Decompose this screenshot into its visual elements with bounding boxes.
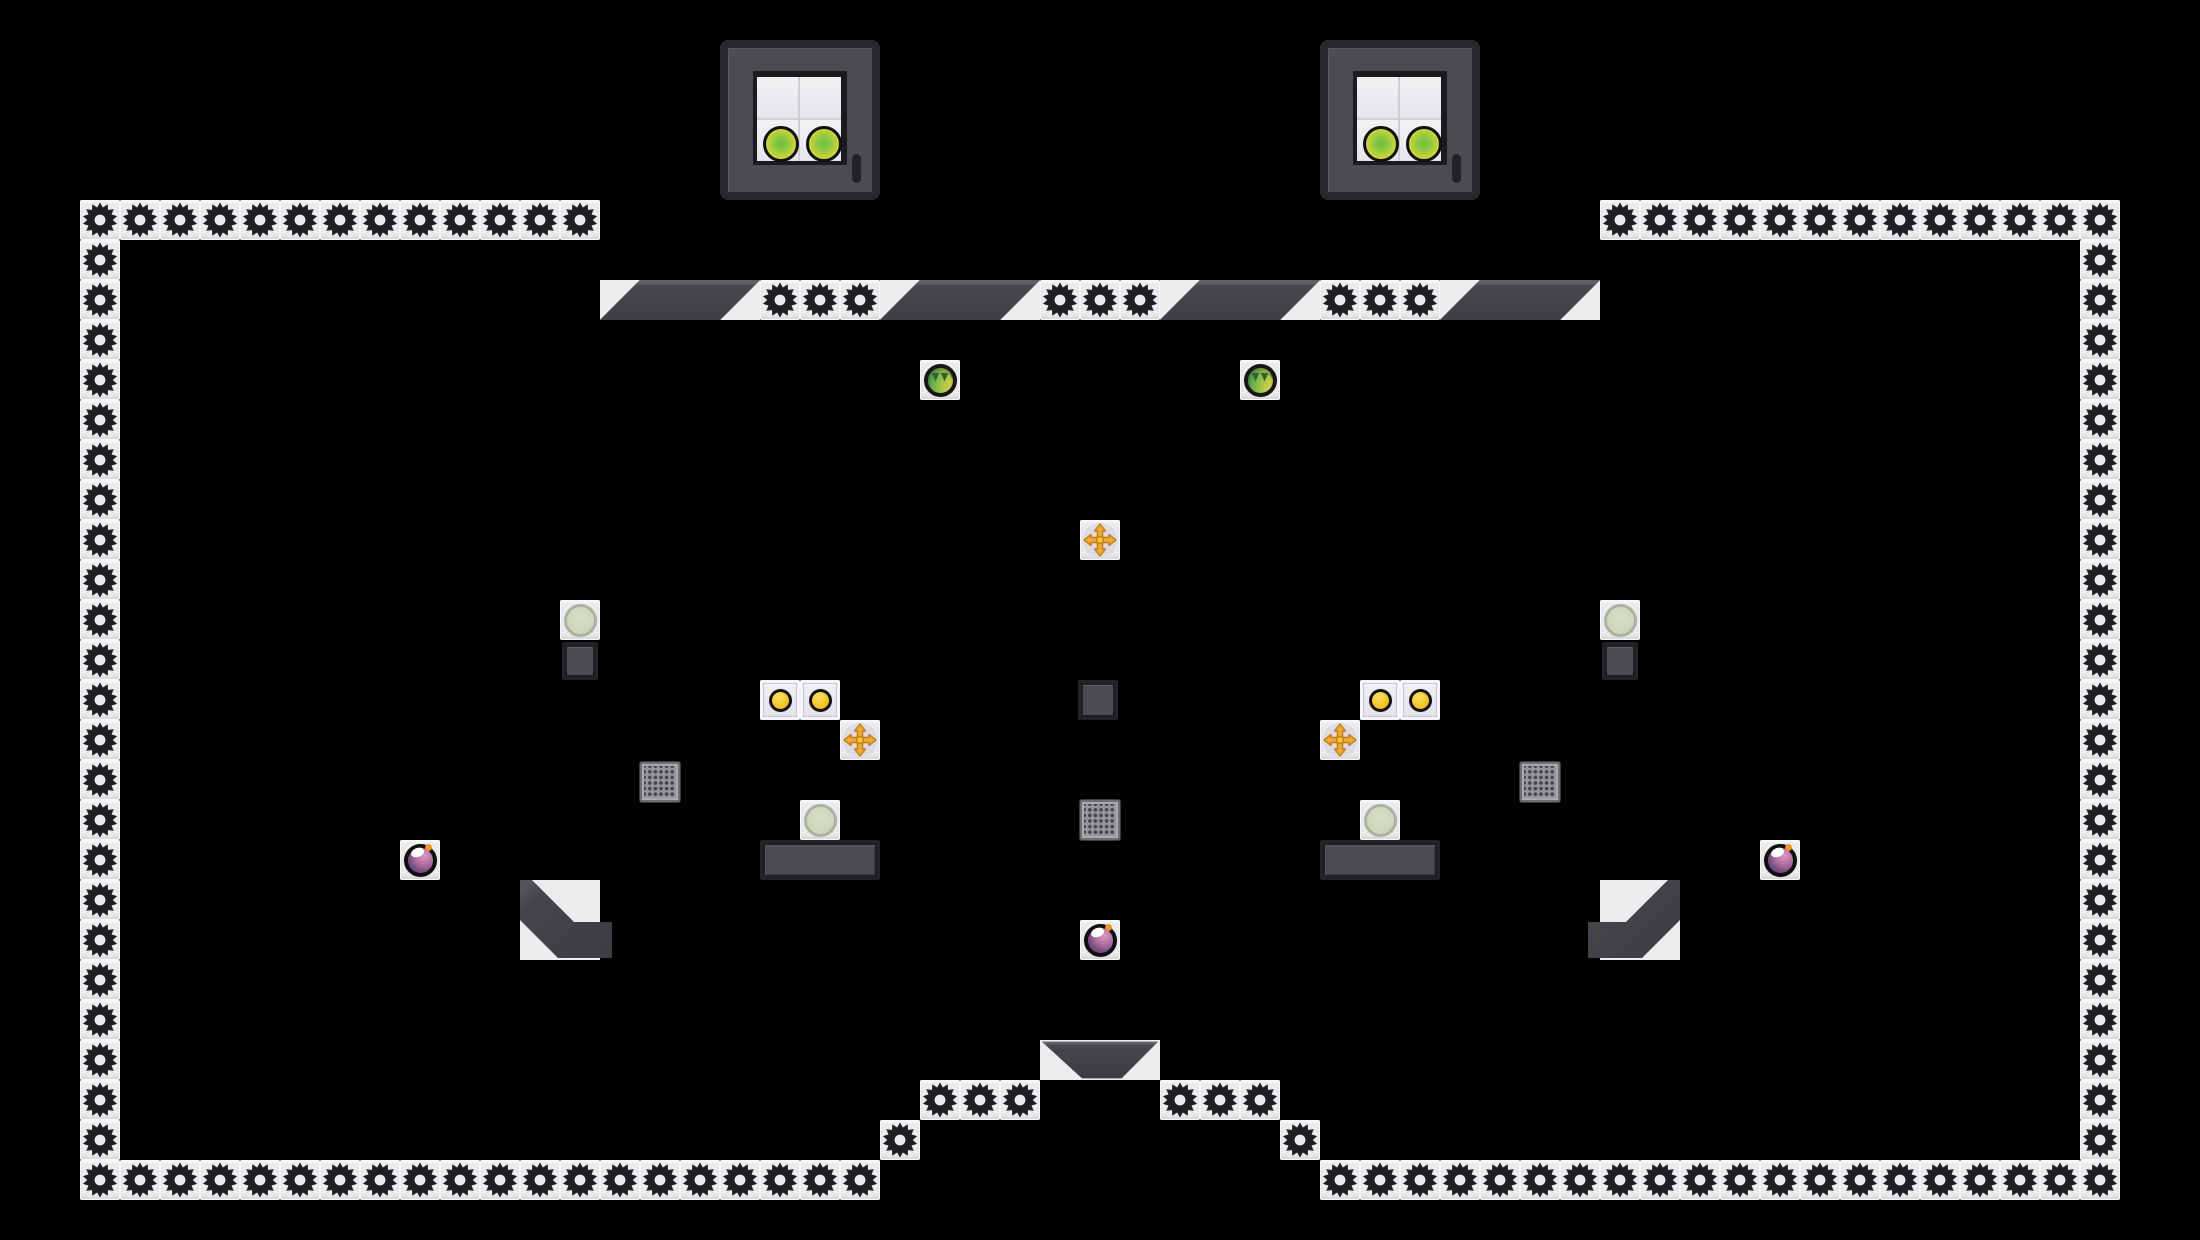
spawner-orb-light — [1363, 126, 1399, 162]
gear-block-tile — [2080, 320, 2120, 360]
gear-icon — [520, 1160, 560, 1200]
gear-icon — [400, 200, 440, 240]
gear-icon — [960, 1080, 1000, 1120]
gear-block-tile — [600, 1160, 640, 1200]
gear-icon — [80, 240, 120, 280]
metal-crate[interactable] — [1078, 680, 1118, 720]
gear-block-tile — [2080, 600, 2120, 640]
gear-block-tile — [1680, 200, 1720, 240]
gear-block-tile — [1640, 200, 1680, 240]
bomb-spark-icon — [1105, 924, 1112, 931]
pale-bubble-tile — [1600, 600, 1640, 640]
gear-block-tile — [1800, 200, 1840, 240]
gear-block-tile — [80, 560, 120, 600]
gear-block-tile — [80, 320, 120, 360]
gear-block-tile — [2000, 1160, 2040, 1200]
gear-block-tile — [2080, 1040, 2120, 1080]
gear-icon — [120, 1160, 160, 1200]
gear-icon — [80, 1080, 120, 1120]
gear-block-tile — [1480, 1160, 1520, 1200]
gear-block-tile — [1840, 1160, 1880, 1200]
pale-bubble-tile — [800, 800, 840, 840]
yellow-dot-button[interactable] — [800, 680, 840, 720]
gear-block-tile — [2080, 880, 2120, 920]
gear-block-tile — [1800, 1160, 1840, 1200]
gear-block-tile — [960, 1080, 1000, 1120]
bomb-shine-icon — [1090, 926, 1105, 938]
gear-icon — [200, 200, 240, 240]
slanted-platform — [1160, 280, 1320, 320]
spawner-orb-light — [806, 126, 842, 162]
bomb-spark-icon — [425, 844, 432, 851]
purple-bomb-tile — [400, 840, 440, 880]
gear-icon — [1080, 280, 1120, 320]
gear-block-tile — [2080, 1000, 2120, 1040]
gear-icon — [600, 1160, 640, 1200]
gear-icon — [2080, 560, 2120, 600]
gear-block-tile — [2080, 800, 2120, 840]
gear-block-tile — [1080, 280, 1120, 320]
gear-icon — [1880, 1160, 1920, 1200]
pale-bubble[interactable] — [1364, 804, 1397, 837]
gear-icon — [120, 200, 160, 240]
gear-icon — [1880, 200, 1920, 240]
gear-icon — [1760, 1160, 1800, 1200]
gear-icon — [560, 1160, 600, 1200]
purple-bomb[interactable] — [404, 844, 437, 877]
gear-block-tile — [1360, 280, 1400, 320]
gear-icon — [80, 680, 120, 720]
pale-bubble[interactable] — [804, 804, 837, 837]
gear-icon — [1680, 1160, 1720, 1200]
gear-icon — [2080, 760, 2120, 800]
yellow-dot-button[interactable] — [760, 680, 800, 720]
green-chomper-orb[interactable] — [924, 364, 957, 397]
gear-block-tile — [760, 1160, 800, 1200]
gear-block-tile — [400, 200, 440, 240]
move-arrows-pickup[interactable] — [1320, 720, 1360, 760]
gear-icon — [1480, 1160, 1520, 1200]
spawner-orb-light — [1406, 126, 1442, 162]
gear-block-tile — [2080, 840, 2120, 880]
gear-icon — [2000, 200, 2040, 240]
gear-block-tile — [1920, 1160, 1960, 1200]
gear-icon — [80, 360, 120, 400]
gear-icon — [80, 400, 120, 440]
gear-block-tile — [1320, 1160, 1360, 1200]
pale-bubble-tile — [1360, 800, 1400, 840]
gear-icon — [80, 1040, 120, 1080]
gear-icon — [1720, 1160, 1760, 1200]
gear-icon — [2080, 880, 2120, 920]
yellow-dot-icon — [809, 689, 832, 712]
gear-icon — [2080, 320, 2120, 360]
gear-icon — [2080, 1040, 2120, 1080]
gear-icon — [720, 1160, 760, 1200]
gear-block-tile — [2080, 280, 2120, 320]
gear-icon — [320, 200, 360, 240]
gear-icon — [1920, 1160, 1960, 1200]
chomper-tooth-icon — [1270, 373, 1277, 382]
gear-icon — [240, 1160, 280, 1200]
gear-icon — [1680, 200, 1720, 240]
gear-block-tile — [240, 1160, 280, 1200]
gear-icon — [480, 1160, 520, 1200]
gear-block-tile — [2080, 520, 2120, 560]
gear-block-tile — [80, 360, 120, 400]
yellow-dot-icon — [1369, 689, 1392, 712]
gear-block-tile — [80, 600, 120, 640]
gear-icon — [80, 1000, 120, 1040]
gear-icon — [1720, 200, 1760, 240]
gear-block-tile — [1400, 1160, 1440, 1200]
gear-block-tile — [2080, 400, 2120, 440]
gear-icon — [440, 1160, 480, 1200]
move-arrows-icon — [1320, 720, 1360, 760]
gear-icon — [640, 1160, 680, 1200]
spawner-box[interactable] — [1320, 40, 1480, 200]
gear-icon — [1960, 200, 2000, 240]
gear-block-tile — [720, 1160, 760, 1200]
gear-block-tile — [2000, 200, 2040, 240]
gear-block-tile — [80, 1160, 120, 1200]
gear-icon — [80, 720, 120, 760]
gear-icon — [80, 600, 120, 640]
gear-block-tile — [2080, 200, 2120, 240]
spawner-window-cell — [800, 77, 841, 118]
gear-block-tile — [520, 1160, 560, 1200]
gear-icon — [2080, 640, 2120, 680]
gear-icon — [80, 560, 120, 600]
gear-icon — [80, 1120, 120, 1160]
chomper-tooth-icon — [1252, 373, 1260, 382]
gear-icon — [360, 1160, 400, 1200]
gear-icon — [80, 920, 120, 960]
gear-block-tile — [1120, 280, 1160, 320]
gear-block-tile — [840, 1160, 880, 1200]
gear-block-tile — [2080, 720, 2120, 760]
gear-icon — [1640, 200, 1680, 240]
gear-icon — [1360, 1160, 1400, 1200]
gear-icon — [1600, 200, 1640, 240]
gear-block-tile — [2080, 360, 2120, 400]
gear-icon — [1160, 1080, 1200, 1120]
gear-icon — [1120, 280, 1160, 320]
gear-icon — [80, 520, 120, 560]
gear-icon — [2080, 400, 2120, 440]
gear-block-tile — [1760, 200, 1800, 240]
gear-icon — [1360, 280, 1400, 320]
platform-block — [760, 840, 880, 880]
gear-icon — [2080, 360, 2120, 400]
gear-block-tile — [80, 880, 120, 920]
pale-bubble[interactable] — [1604, 604, 1637, 637]
gear-icon — [1800, 200, 1840, 240]
move-arrows-icon — [1080, 520, 1120, 560]
green-chomper-orb[interactable] — [1244, 364, 1277, 397]
gear-block-tile — [80, 680, 120, 720]
gear-icon — [400, 1160, 440, 1200]
corner-chute — [1588, 880, 1680, 960]
gear-icon — [2080, 840, 2120, 880]
gear-block-tile — [680, 1160, 720, 1200]
gear-icon — [2080, 520, 2120, 560]
vent-grate-tile — [1520, 762, 1560, 802]
gear-block-tile — [1960, 200, 2000, 240]
gear-icon — [80, 840, 120, 880]
bomb-shine-icon — [1770, 846, 1785, 858]
gear-icon — [80, 280, 120, 320]
purple-bomb[interactable] — [1764, 844, 1797, 877]
gear-block-tile — [1200, 1080, 1240, 1120]
gear-block-tile — [440, 1160, 480, 1200]
gear-icon — [1200, 1080, 1240, 1120]
gear-icon — [2080, 440, 2120, 480]
gear-block-tile — [1920, 200, 1960, 240]
gear-icon — [2080, 800, 2120, 840]
gear-icon — [1280, 1120, 1320, 1160]
gear-icon — [280, 1160, 320, 1200]
gear-block-tile — [1960, 1160, 2000, 1200]
gear-block-tile — [80, 400, 120, 440]
gear-block-tile — [560, 1160, 600, 1200]
gear-icon — [1440, 1160, 1480, 1200]
gear-icon — [1560, 1160, 1600, 1200]
gear-block-tile — [840, 280, 880, 320]
gear-icon — [1000, 1080, 1040, 1120]
gear-block-tile — [800, 1160, 840, 1200]
yellow-dot-icon — [1409, 689, 1432, 712]
chomper-tooth-icon — [932, 373, 940, 382]
gear-icon — [80, 200, 120, 240]
gear-block-tile — [1280, 1120, 1320, 1160]
gear-icon — [80, 960, 120, 1000]
spawner-box[interactable] — [720, 40, 880, 200]
gear-block-tile — [360, 200, 400, 240]
spawner-window-cell — [757, 77, 798, 118]
gear-block-tile — [320, 200, 360, 240]
gear-block-tile — [1600, 1160, 1640, 1200]
spawner-window-cell — [1357, 77, 1398, 118]
gear-block-tile — [1360, 1160, 1400, 1200]
gear-block-tile — [1720, 1160, 1760, 1200]
gear-block-tile — [80, 240, 120, 280]
gear-block-tile — [2080, 440, 2120, 480]
gear-block-tile — [2080, 920, 2120, 960]
gear-icon — [1800, 1160, 1840, 1200]
gear-block-tile — [800, 280, 840, 320]
gear-block-tile — [520, 200, 560, 240]
gear-block-tile — [2080, 1080, 2120, 1120]
funnel-block — [1040, 1040, 1160, 1080]
vent-grate-tile — [1080, 800, 1120, 840]
gear-icon — [80, 640, 120, 680]
move-arrows-pickup[interactable] — [840, 720, 880, 760]
slanted-platform — [1440, 280, 1600, 320]
gear-block-tile — [80, 1120, 120, 1160]
gear-icon — [440, 200, 480, 240]
pale-bubble-tile — [560, 600, 600, 640]
gear-icon — [80, 320, 120, 360]
yellow-dot-icon — [769, 689, 792, 712]
vent-grate-tile — [640, 762, 680, 802]
gear-block-tile — [2080, 480, 2120, 520]
gear-block-tile — [160, 200, 200, 240]
gear-block-tile — [1880, 200, 1920, 240]
gear-icon — [360, 200, 400, 240]
gear-block-tile — [80, 800, 120, 840]
gear-block-tile — [1560, 1160, 1600, 1200]
gear-block-tile — [80, 960, 120, 1000]
spawner-orb-light — [763, 126, 799, 162]
metal-crate[interactable] — [562, 642, 598, 680]
gear-block-tile — [80, 840, 120, 880]
gear-block-tile — [80, 1000, 120, 1040]
gear-block-tile — [1400, 280, 1440, 320]
gear-icon — [2080, 920, 2120, 960]
gear-icon — [240, 200, 280, 240]
gear-block-tile — [240, 200, 280, 240]
bomb-shine-icon — [410, 846, 425, 858]
gear-block-tile — [880, 1120, 920, 1160]
gear-block-tile — [80, 640, 120, 680]
gear-icon — [560, 200, 600, 240]
bomb-spark-icon — [1785, 844, 1792, 851]
gear-block-tile — [2040, 1160, 2080, 1200]
gear-icon — [2080, 680, 2120, 720]
chomper-tooth-icon — [1261, 373, 1269, 382]
gear-icon — [2080, 480, 2120, 520]
gear-block-tile — [200, 1160, 240, 1200]
gear-block-tile — [2080, 760, 2120, 800]
spawner-latch — [852, 154, 861, 183]
gear-block-tile — [160, 1160, 200, 1200]
gear-block-tile — [120, 200, 160, 240]
chomper-tooth-icon — [941, 373, 949, 382]
metal-crate[interactable] — [1602, 642, 1638, 680]
gear-icon — [1400, 280, 1440, 320]
gear-icon — [2080, 600, 2120, 640]
pale-bubble[interactable] — [564, 604, 597, 637]
gear-block-tile — [80, 280, 120, 320]
gear-block-tile — [1720, 200, 1760, 240]
gear-icon — [760, 1160, 800, 1200]
gear-block-tile — [200, 200, 240, 240]
gear-icon — [1400, 1160, 1440, 1200]
gear-block-tile — [80, 720, 120, 760]
gear-block-tile — [320, 1160, 360, 1200]
gear-icon — [1320, 1160, 1360, 1200]
gear-block-tile — [1320, 280, 1360, 320]
gear-icon — [760, 280, 800, 320]
gear-icon — [1520, 1160, 1560, 1200]
gear-block-tile — [80, 200, 120, 240]
gear-icon — [2080, 200, 2120, 240]
gear-icon — [1840, 200, 1880, 240]
purple-bomb[interactable] — [1084, 924, 1117, 957]
gear-icon — [1920, 200, 1960, 240]
gear-icon — [2040, 200, 2080, 240]
gear-block-tile — [2080, 640, 2120, 680]
gear-block-tile — [280, 1160, 320, 1200]
gear-block-tile — [1840, 200, 1880, 240]
gear-icon — [2080, 1000, 2120, 1040]
gear-icon — [840, 1160, 880, 1200]
gear-block-tile — [80, 480, 120, 520]
gear-block-tile — [2080, 1160, 2120, 1200]
gear-icon — [920, 1080, 960, 1120]
gear-block-tile — [1640, 1160, 1680, 1200]
gear-block-tile — [80, 1040, 120, 1080]
slanted-platform — [600, 280, 760, 320]
funnel-backing — [1040, 1040, 1160, 1080]
gear-icon — [1240, 1080, 1280, 1120]
gear-icon — [200, 1160, 240, 1200]
gear-icon — [80, 440, 120, 480]
gear-block-tile — [360, 1160, 400, 1200]
gear-icon — [80, 760, 120, 800]
gear-block-tile — [1440, 1160, 1480, 1200]
gear-block-tile — [80, 1080, 120, 1120]
gear-block-tile — [640, 1160, 680, 1200]
gear-block-tile — [480, 1160, 520, 1200]
purple-bomb-tile — [1080, 920, 1120, 960]
yellow-dot-button[interactable] — [1400, 680, 1440, 720]
gear-block-tile — [1880, 1160, 1920, 1200]
gear-block-tile — [1760, 1160, 1800, 1200]
gear-icon — [320, 1160, 360, 1200]
chomper-tooth-icon — [950, 373, 957, 382]
gear-icon — [2000, 1160, 2040, 1200]
gear-block-tile — [80, 520, 120, 560]
gear-icon — [1960, 1160, 2000, 1200]
gear-icon — [880, 1120, 920, 1160]
move-arrows-pickup[interactable] — [1080, 520, 1120, 560]
corner-chute — [520, 880, 612, 960]
gear-block-tile — [1240, 1080, 1280, 1120]
gear-icon — [2080, 280, 2120, 320]
gear-icon — [480, 200, 520, 240]
green-orb-tile — [1240, 360, 1280, 400]
green-orb-tile — [920, 360, 960, 400]
gear-icon — [680, 1160, 720, 1200]
gear-icon — [80, 800, 120, 840]
gear-icon — [160, 1160, 200, 1200]
gear-block-tile — [1160, 1080, 1200, 1120]
gear-block-tile — [440, 200, 480, 240]
gear-icon — [80, 480, 120, 520]
gear-icon — [1640, 1160, 1680, 1200]
gear-icon — [1840, 1160, 1880, 1200]
gear-block-tile — [480, 200, 520, 240]
gear-icon — [1760, 200, 1800, 240]
gear-icon — [520, 200, 560, 240]
gear-icon — [800, 280, 840, 320]
gear-icon — [2080, 960, 2120, 1000]
purple-bomb-tile — [1760, 840, 1800, 880]
gear-block-tile — [2080, 560, 2120, 600]
yellow-dot-button[interactable] — [1360, 680, 1400, 720]
gear-icon — [1320, 280, 1360, 320]
gear-block-tile — [80, 920, 120, 960]
gear-block-tile — [120, 1160, 160, 1200]
gear-icon — [80, 880, 120, 920]
move-arrows-icon — [840, 720, 880, 760]
game-level-canvas[interactable] — [0, 0, 2200, 1240]
gear-block-tile — [1680, 1160, 1720, 1200]
gear-icon — [2080, 1080, 2120, 1120]
gear-block-tile — [2080, 1120, 2120, 1160]
